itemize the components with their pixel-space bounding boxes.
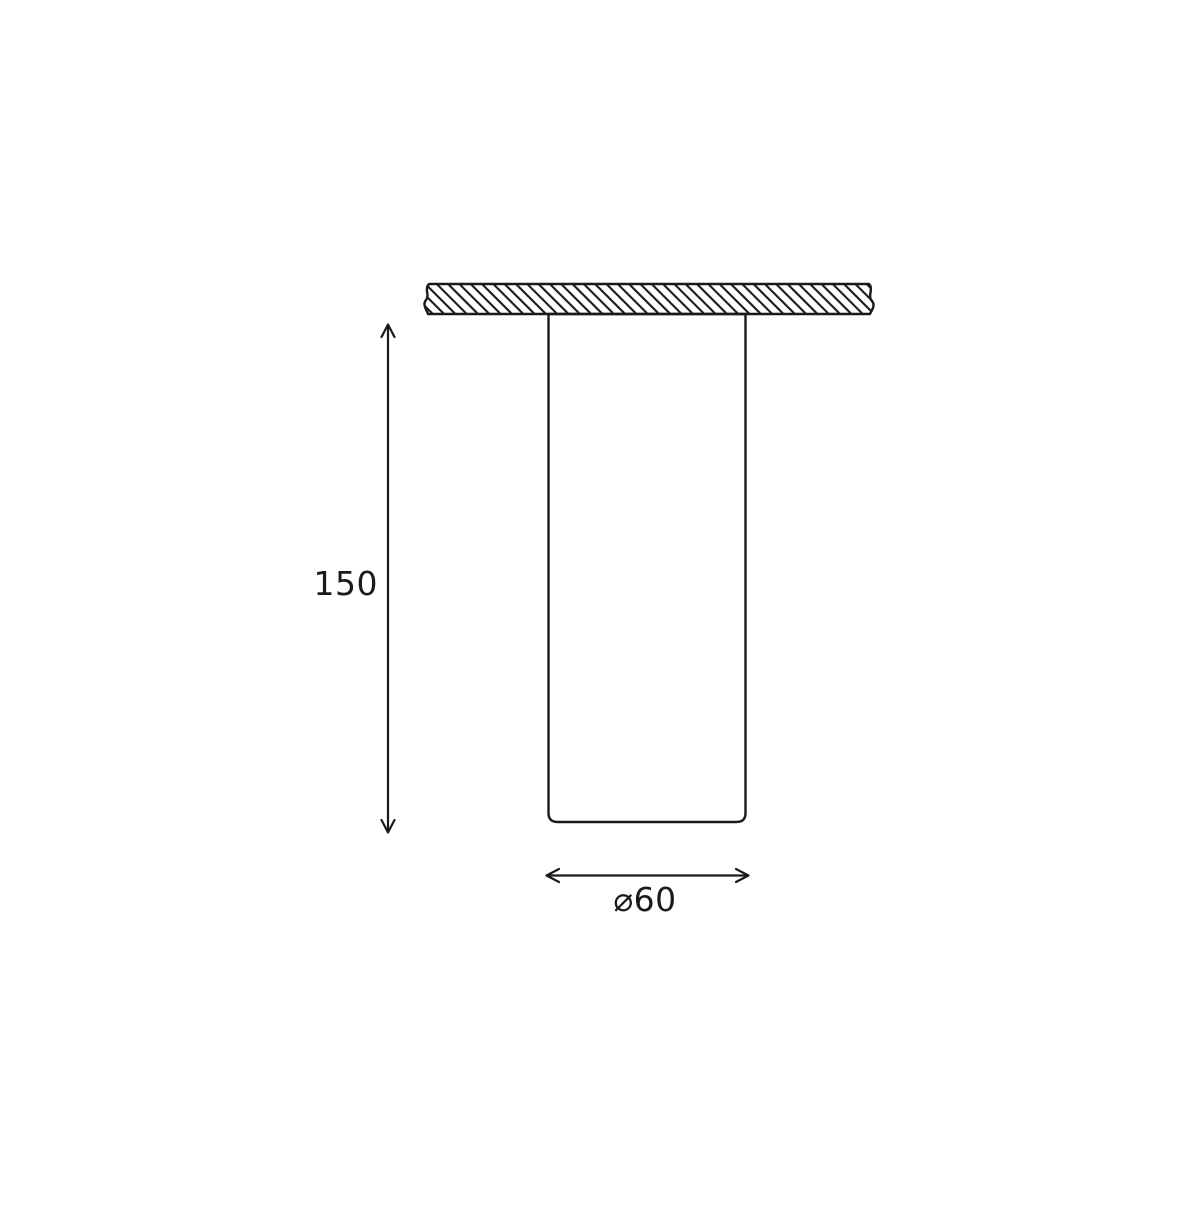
diameter-dimension: ⌀60 [547,869,749,919]
height-dimension-label: 150 [314,564,379,603]
ceiling-section-hatched [424,284,873,314]
drawing-root-group: 150 ⌀60 [314,284,874,919]
technical-drawing-canvas: 150 ⌀60 [0,0,1200,1200]
fixture-body-outline [549,314,746,822]
height-dimension: 150 [314,325,395,833]
dimension-drawing-svg: 150 ⌀60 [0,0,1200,1200]
diameter-dimension-label: ⌀60 [613,880,676,919]
